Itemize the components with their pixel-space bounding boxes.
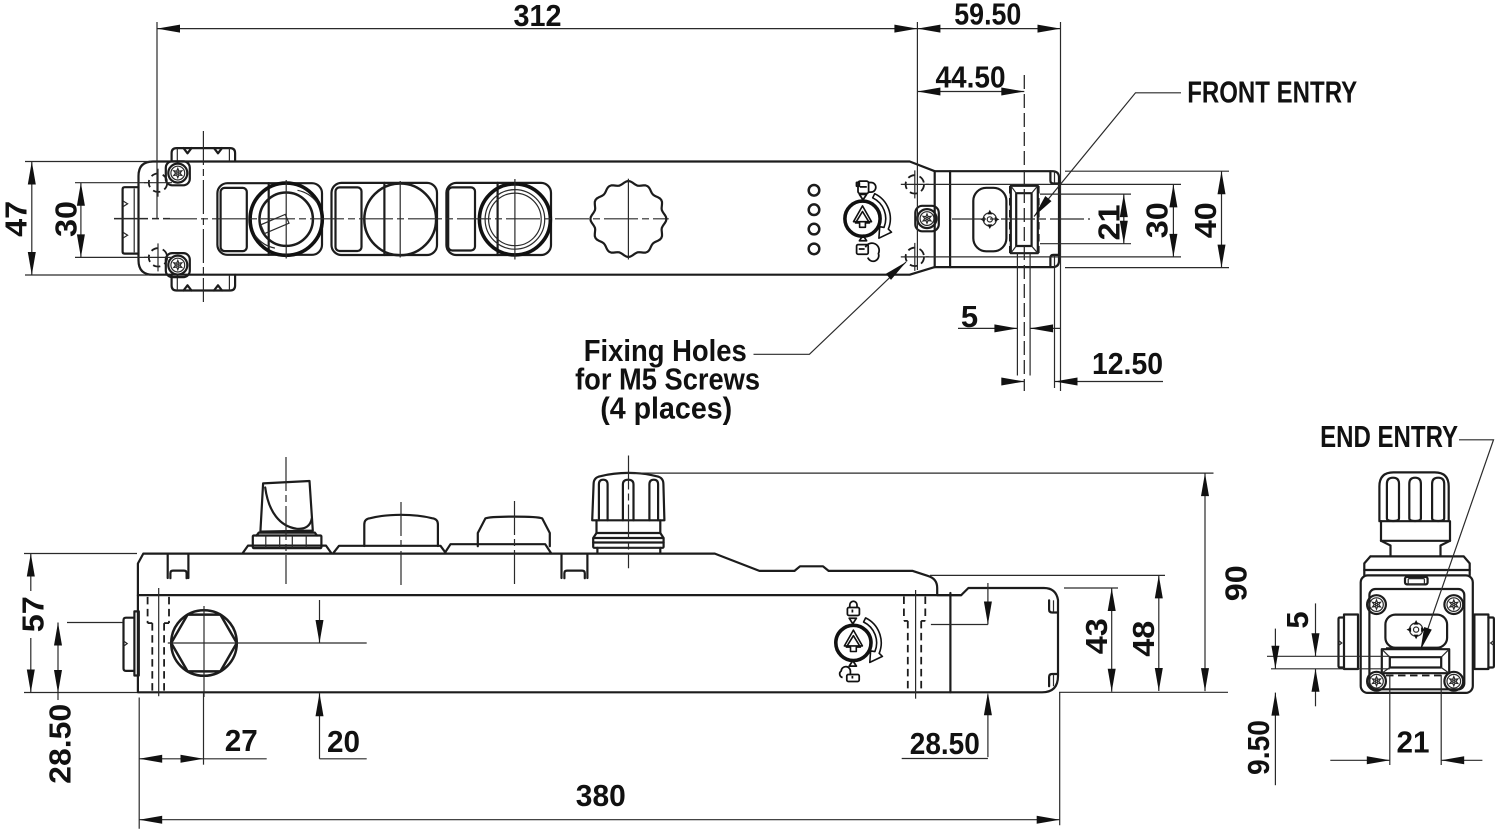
svg-text:57: 57 bbox=[16, 596, 51, 632]
svg-text:9.50: 9.50 bbox=[1241, 720, 1276, 775]
svg-text:20: 20 bbox=[327, 724, 360, 759]
svg-text:380: 380 bbox=[576, 778, 626, 813]
svg-text:21: 21 bbox=[1092, 205, 1127, 241]
svg-text:(4 places): (4 places) bbox=[600, 391, 732, 426]
svg-text:59.50: 59.50 bbox=[954, 0, 1021, 32]
svg-text:5: 5 bbox=[1280, 611, 1315, 628]
svg-text:28.50: 28.50 bbox=[910, 726, 980, 761]
svg-text:5: 5 bbox=[961, 299, 978, 334]
svg-text:47: 47 bbox=[0, 201, 34, 237]
svg-text:28.50: 28.50 bbox=[43, 704, 78, 784]
svg-text:27: 27 bbox=[225, 723, 258, 758]
svg-text:43: 43 bbox=[1079, 618, 1114, 654]
svg-text:30: 30 bbox=[1140, 202, 1175, 238]
svg-text:312: 312 bbox=[514, 0, 562, 33]
svg-text:40: 40 bbox=[1188, 202, 1223, 238]
svg-text:END ENTRY: END ENTRY bbox=[1320, 419, 1458, 454]
svg-text:21: 21 bbox=[1397, 725, 1430, 760]
svg-text:48: 48 bbox=[1126, 621, 1161, 657]
svg-text:30: 30 bbox=[49, 201, 84, 237]
svg-text:44.50: 44.50 bbox=[936, 60, 1006, 95]
svg-text:90: 90 bbox=[1219, 565, 1254, 601]
svg-text:FRONT ENTRY: FRONT ENTRY bbox=[1187, 74, 1357, 109]
svg-text:12.50: 12.50 bbox=[1092, 346, 1163, 381]
